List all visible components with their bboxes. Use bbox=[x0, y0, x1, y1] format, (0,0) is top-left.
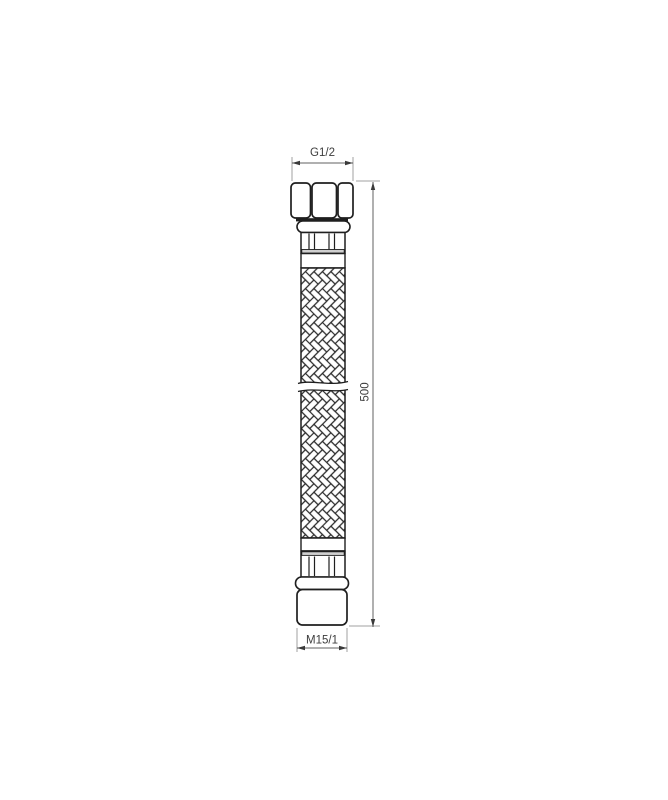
hex-nut-middle-face bbox=[312, 183, 337, 218]
upper-crimp-sleeve bbox=[301, 233, 345, 254]
lower-crimp-sleeve bbox=[301, 551, 345, 577]
collar-ring bbox=[296, 577, 349, 590]
arrow-up-icon bbox=[371, 182, 375, 190]
crimp-shaded-band bbox=[302, 552, 344, 556]
hex-nut-right-face bbox=[338, 183, 353, 218]
arrow-left-icon bbox=[297, 646, 305, 650]
upper-ferrule-band bbox=[301, 254, 345, 269]
connector-body bbox=[297, 590, 347, 626]
bottom-thread-label: M15/1 bbox=[306, 635, 338, 647]
hose-technical-drawing: G1/2 bbox=[0, 0, 668, 800]
crimp-shaded-band bbox=[302, 250, 344, 254]
upper-collar bbox=[297, 221, 350, 233]
lower-ferrule-band bbox=[301, 538, 345, 551]
arrow-right-icon bbox=[345, 161, 353, 165]
dimension-bottom-thread: M15/1 bbox=[297, 628, 347, 652]
break-symbol bbox=[298, 382, 348, 392]
hex-nut-left-face bbox=[291, 183, 311, 218]
hex-nut bbox=[291, 183, 353, 221]
dimension-top-thread: G1/2 bbox=[292, 147, 353, 181]
dimension-length: 500 bbox=[349, 181, 380, 627]
braid-texture bbox=[301, 268, 345, 538]
length-label: 500 bbox=[360, 382, 372, 401]
braided-hose bbox=[298, 268, 348, 538]
lower-collar bbox=[296, 577, 349, 590]
arrow-left-icon bbox=[292, 161, 300, 165]
collar-ring bbox=[297, 221, 350, 233]
arrow-right-icon bbox=[339, 646, 347, 650]
top-thread-label: G1/2 bbox=[310, 147, 335, 159]
technical-drawing-page: G1/2 bbox=[0, 0, 668, 800]
